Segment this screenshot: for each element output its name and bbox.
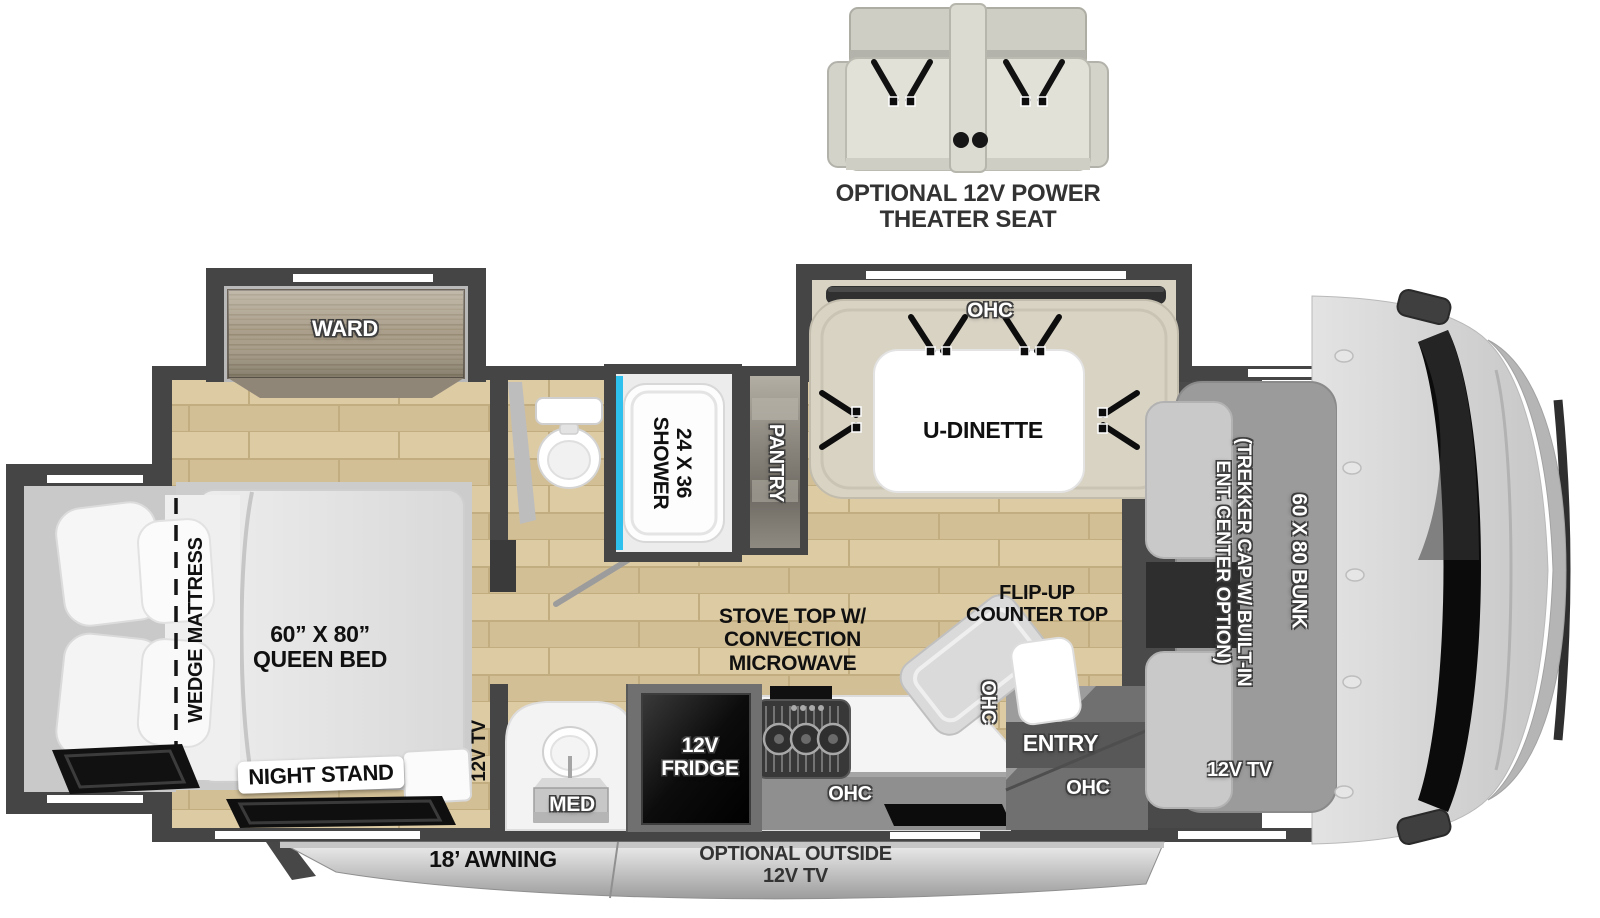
- floor-mat: [52, 744, 200, 794]
- cabinet-handle: [884, 804, 1012, 826]
- window: [890, 832, 980, 839]
- entry-door: [1010, 636, 1083, 726]
- wall: [490, 376, 508, 568]
- rivet: [1346, 569, 1364, 581]
- night-stand: [403, 748, 472, 803]
- fridge: [626, 684, 762, 832]
- cab-seat: [1146, 652, 1232, 808]
- queen-bed: [52, 482, 472, 828]
- toilet-icon: [536, 398, 602, 488]
- cabover-bunk: [1146, 350, 1364, 812]
- vanity-sink: [506, 702, 634, 830]
- cupholder-icon: [972, 132, 988, 148]
- window: [1178, 831, 1286, 839]
- shower-glass: [616, 376, 623, 550]
- shower-stall: [604, 364, 742, 562]
- window: [866, 271, 1126, 279]
- ward-slideout: [206, 268, 486, 398]
- theater-seat-illustration: [828, 4, 1108, 172]
- pantry-cabinet: [742, 370, 808, 555]
- window: [47, 795, 143, 803]
- rivet: [1335, 350, 1353, 362]
- awning-bar: [266, 842, 1164, 899]
- window: [215, 831, 420, 839]
- window: [293, 274, 433, 282]
- cab-front: [1312, 288, 1566, 846]
- rivet: [1343, 462, 1361, 474]
- floorplan-graphics: [0, 0, 1600, 918]
- dinette-table: [874, 350, 1084, 492]
- window: [1248, 369, 1318, 377]
- rivet: [1335, 786, 1353, 798]
- wardrobe-cabinet: [228, 290, 464, 398]
- stove-icon: [756, 700, 850, 778]
- rivet: [1343, 676, 1361, 688]
- rv-floorplan-diagram: OPTIONAL 12V POWER THEATER SEAT WARD WED…: [0, 0, 1600, 918]
- floor-mat: [226, 796, 456, 828]
- cupholder-icon: [953, 132, 969, 148]
- u-dinette: [810, 300, 1178, 498]
- window: [47, 475, 143, 483]
- cab-seat: [1146, 402, 1232, 558]
